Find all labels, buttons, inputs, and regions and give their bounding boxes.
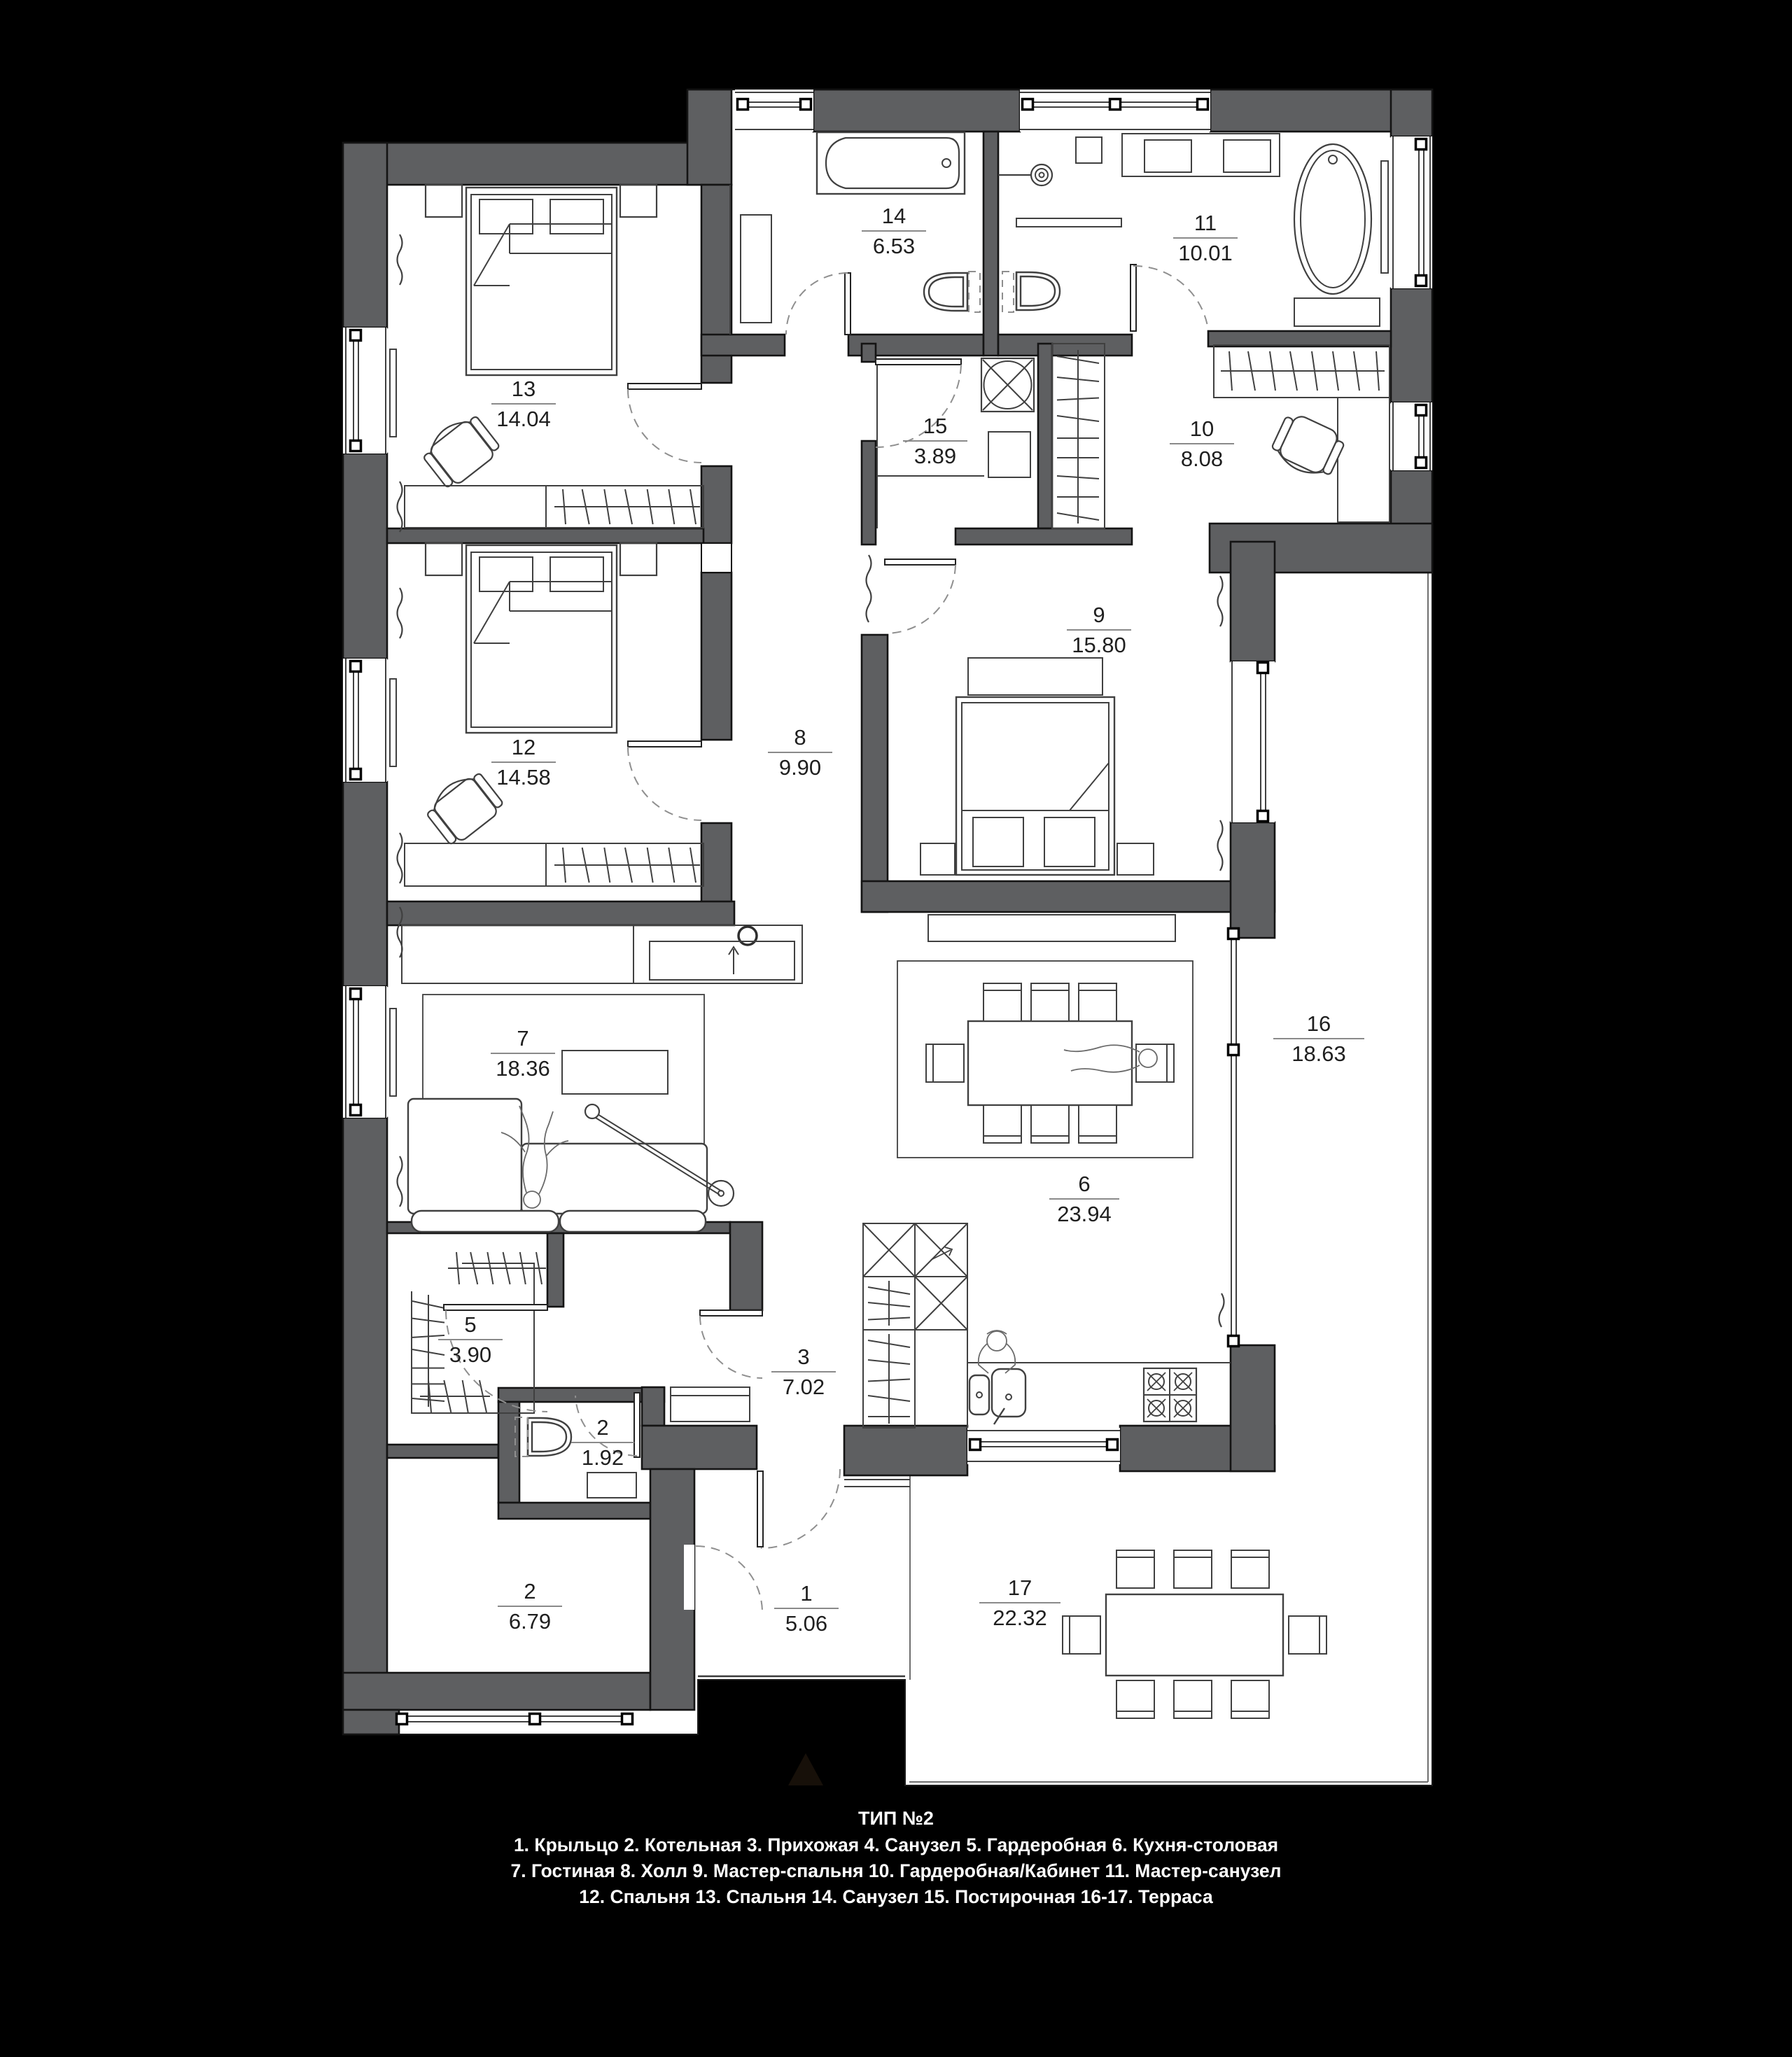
- svg-text:1.92: 1.92: [582, 1445, 624, 1470]
- svg-text:12. Спальня 13. Спальня 14.: 12. Спальня 13. Спальня 14. Санузел 15. …: [579, 1886, 1213, 1907]
- svg-text:17: 17: [1008, 1575, 1032, 1600]
- svg-text:3: 3: [797, 1345, 809, 1369]
- svg-text:13: 13: [512, 377, 535, 401]
- svg-text:23.94: 23.94: [1057, 1202, 1112, 1226]
- svg-text:9.90: 9.90: [779, 755, 821, 780]
- svg-text:12: 12: [512, 735, 535, 759]
- svg-text:6.79: 6.79: [509, 1609, 551, 1634]
- svg-text:10.01: 10.01: [1178, 241, 1233, 265]
- svg-text:1. Крыльцо 2. Котельная 3. При: 1. Крыльцо 2. Котельная 3. Прихожая 4. С…: [514, 1834, 1278, 1855]
- svg-text:7.02: 7.02: [783, 1375, 825, 1399]
- svg-text:ТИП №2: ТИП №2: [858, 1808, 934, 1829]
- svg-text:18.63: 18.63: [1291, 1041, 1346, 1066]
- svg-text:14: 14: [882, 204, 906, 228]
- svg-text:6.53: 6.53: [873, 234, 915, 258]
- svg-text:9: 9: [1093, 603, 1105, 627]
- svg-text:1: 1: [800, 1581, 812, 1606]
- svg-text:3.89: 3.89: [914, 444, 956, 468]
- svg-text:6: 6: [1078, 1172, 1090, 1196]
- svg-text:16: 16: [1307, 1011, 1331, 1036]
- svg-text:8: 8: [794, 725, 806, 750]
- svg-text:15.80: 15.80: [1072, 633, 1126, 657]
- svg-text:14.58: 14.58: [496, 765, 551, 789]
- svg-text:10: 10: [1190, 416, 1214, 441]
- svg-text:7: 7: [517, 1026, 528, 1051]
- svg-text:2: 2: [524, 1579, 535, 1603]
- svg-text:7. Гостиная 8. Холл 9. Мастер: 7. Гостиная 8. Холл 9. Мастер-спальня 10…: [510, 1860, 1281, 1881]
- svg-text:5.06: 5.06: [785, 1611, 827, 1636]
- svg-text:3.90: 3.90: [449, 1342, 491, 1367]
- svg-text:14.04: 14.04: [496, 407, 551, 431]
- svg-text:8.08: 8.08: [1181, 447, 1223, 471]
- svg-text:11: 11: [1194, 211, 1217, 235]
- svg-text:18.36: 18.36: [496, 1056, 550, 1081]
- svg-text:5: 5: [464, 1312, 476, 1337]
- svg-text:2: 2: [596, 1415, 608, 1440]
- svg-text:22.32: 22.32: [993, 1606, 1047, 1630]
- svg-text:15: 15: [923, 414, 947, 438]
